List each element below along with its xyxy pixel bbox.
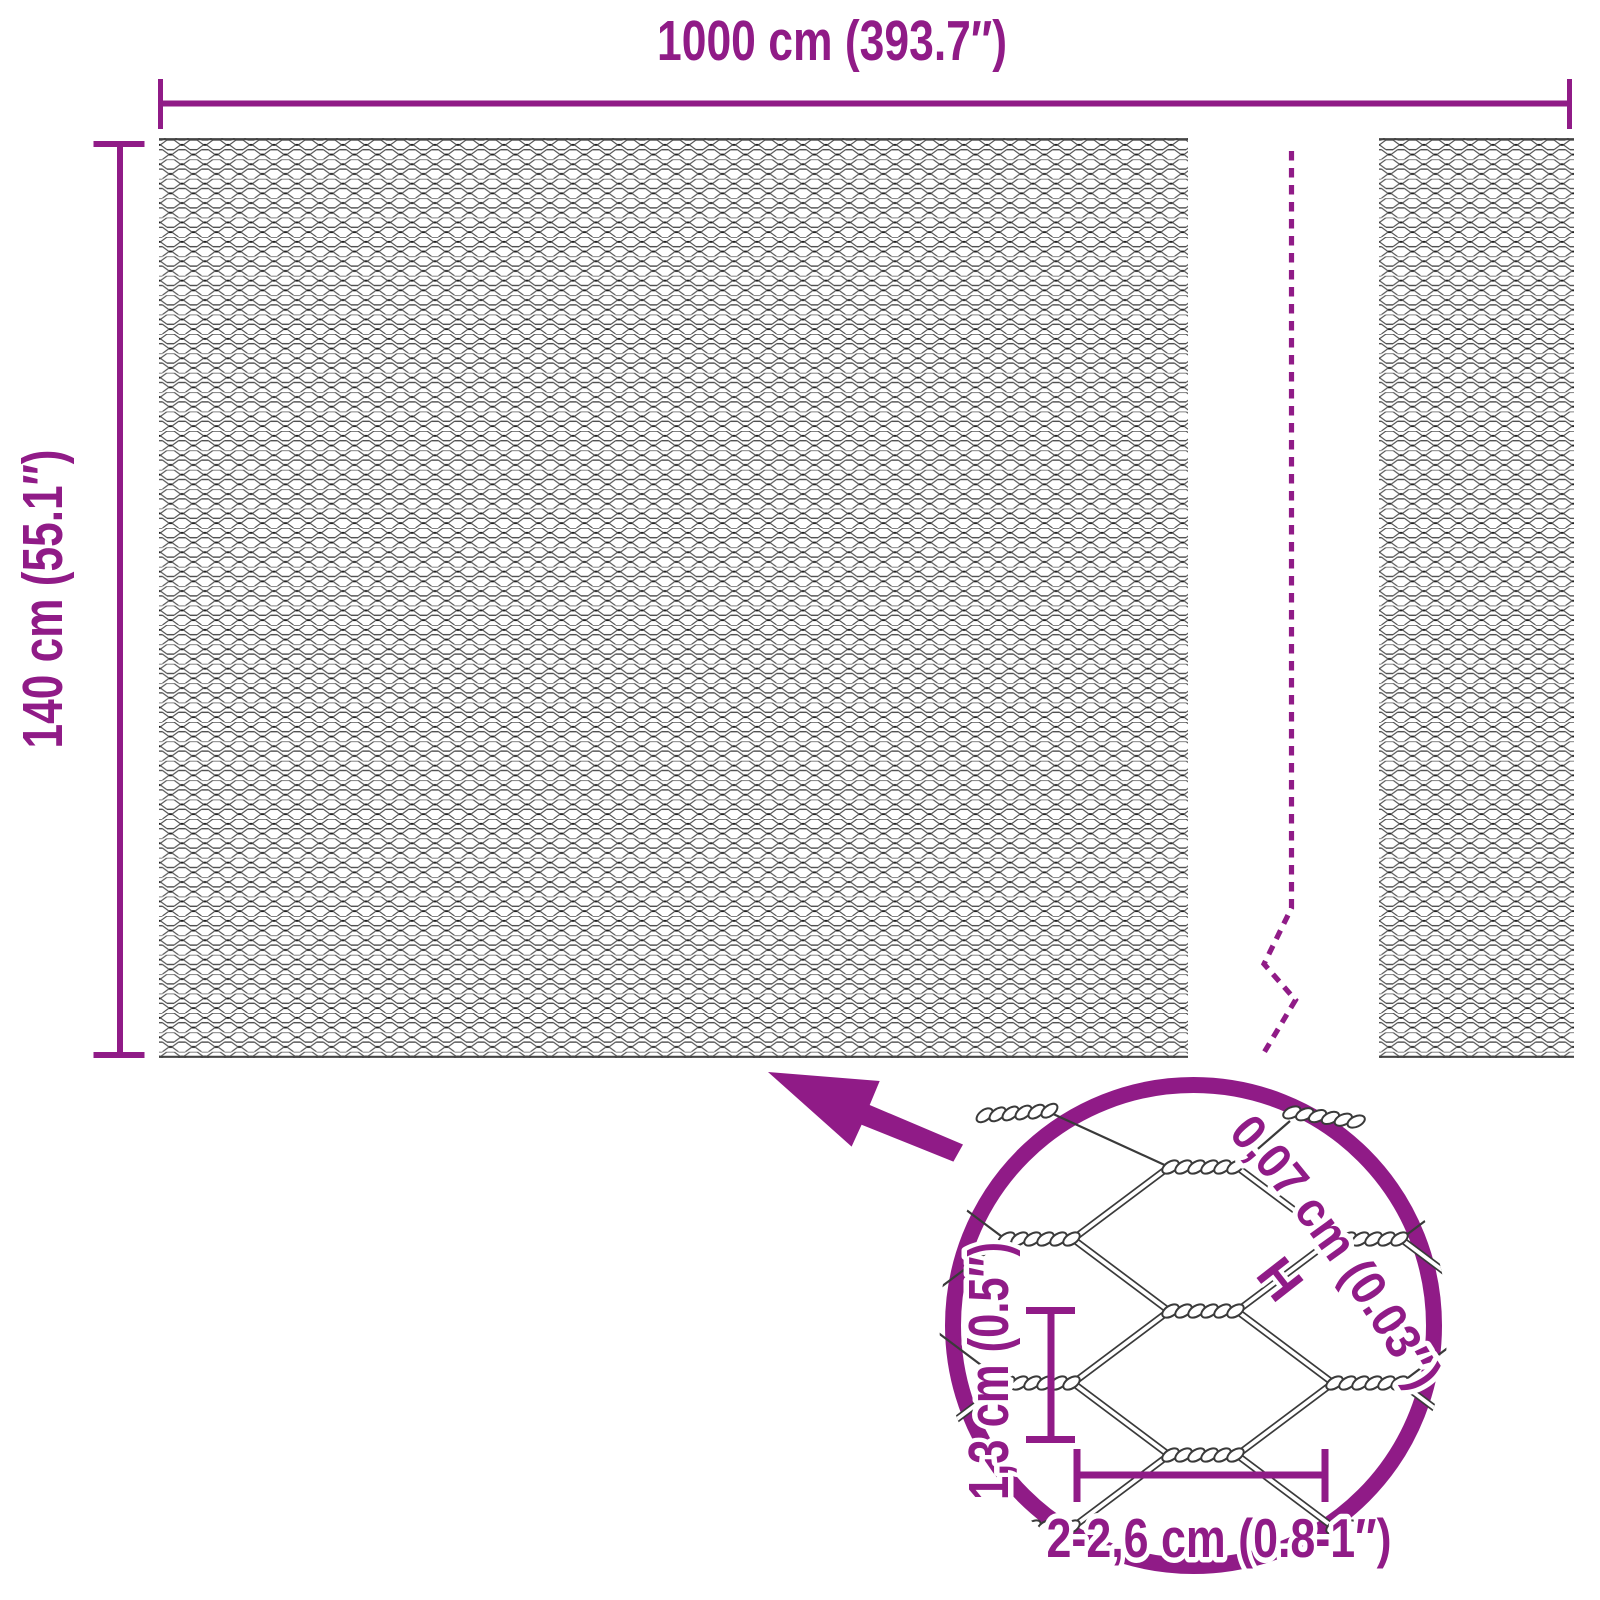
svg-text:1000 cm (393.7″): 1000 cm (393.7″)	[657, 9, 1007, 72]
svg-text:140 cm (55.1″): 140 cm (55.1″)	[11, 450, 74, 749]
svg-text:2-2,6 cm (0.8-1″): 2-2,6 cm (0.8-1″)	[1047, 1507, 1392, 1569]
svg-text:1,3 cm (0.5″): 1,3 cm (0.5″)	[957, 1242, 1020, 1500]
